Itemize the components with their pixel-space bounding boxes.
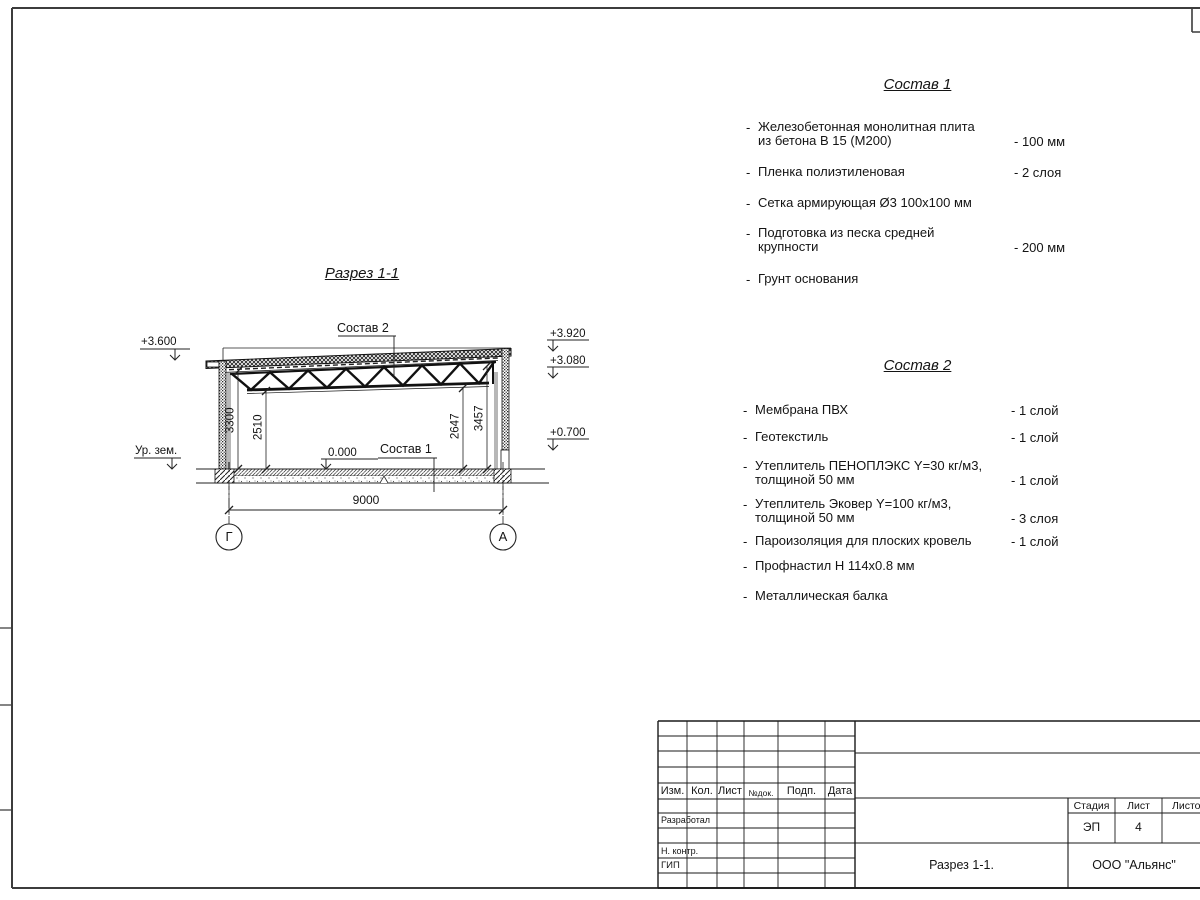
dim-2510: 2510 bbox=[253, 407, 266, 447]
list-item: - Профнастил Н 114х0.8 мм bbox=[743, 559, 915, 574]
item-value: - 100 мм bbox=[1014, 134, 1065, 149]
composition2-title: Состав 2 bbox=[845, 358, 990, 375]
elevation-3920: +3.920 bbox=[550, 328, 586, 341]
right-plinth bbox=[501, 450, 509, 469]
item-text: Пароизоляция для плоских кровель bbox=[755, 534, 972, 548]
list-item: - Геотекстиль - 1 слой bbox=[743, 430, 828, 445]
section-drawing bbox=[134, 336, 589, 550]
roof-callout-label: Состав 2 bbox=[337, 322, 389, 336]
tb-stage-label: Стадия bbox=[1068, 800, 1115, 812]
item-text: Грунт основания bbox=[758, 272, 858, 286]
bullet: - bbox=[743, 459, 747, 474]
tb-sheet-value: 4 bbox=[1115, 820, 1162, 834]
tb-stage-value: ЭП bbox=[1068, 820, 1115, 834]
list-item: - Утеплитель Эковер Y=100 кг/м3,толщиной… bbox=[743, 497, 951, 525]
bullet: - bbox=[746, 165, 750, 180]
list-item: - Грунт основания bbox=[746, 272, 858, 287]
floor-callout-label: Состав 1 bbox=[380, 443, 432, 457]
section-title: Разрез 1-1 bbox=[303, 266, 421, 283]
bullet: - bbox=[746, 272, 750, 287]
list-item: - Сетка армирующая Ø3 100х100 мм bbox=[746, 196, 972, 211]
list-item: - Железобетонная монолитная плитаиз бето… bbox=[746, 120, 975, 148]
ground-level-label: Ур. зем. bbox=[135, 445, 177, 458]
elevation-3080: +3.080 bbox=[550, 355, 586, 368]
drawing-sheet: { "misc": { "dash": "-" }, "drawing": { … bbox=[0, 0, 1200, 900]
tb-doc-title: Разрез 1-1. bbox=[855, 858, 1068, 872]
item-text: крупности bbox=[758, 239, 818, 254]
level-arrow-3600 bbox=[170, 349, 180, 360]
tb-col-podp: Подп. bbox=[778, 785, 825, 797]
floor-slab bbox=[196, 469, 549, 483]
item-value: - 1 слой bbox=[1011, 403, 1059, 418]
item-value: - 200 мм bbox=[1014, 240, 1065, 255]
right-foundation bbox=[494, 469, 511, 483]
item-text: Утеплитель Эковер Y=100 кг/м3, bbox=[755, 496, 951, 511]
tb-company: ООО "Альянс" bbox=[1068, 858, 1200, 872]
tb-col-ndok: №док. bbox=[744, 788, 778, 798]
item-text: Пленка полиэтиленовая bbox=[758, 165, 905, 179]
item-text: Железобетонная монолитная плита bbox=[758, 119, 975, 134]
sand-layer bbox=[226, 476, 495, 483]
left-foundation bbox=[215, 469, 234, 483]
item-text: Мембрана ПВХ bbox=[755, 403, 848, 417]
tb-col-kol: Кол. bbox=[687, 785, 717, 797]
zero-level-label: 0.000 bbox=[328, 447, 357, 460]
list-item: - Подготовка из песка среднейкрупности -… bbox=[746, 226, 934, 254]
axis-letter-left: Г bbox=[215, 530, 243, 544]
item-text: толщиной 50 мм bbox=[755, 510, 855, 525]
composition1-title: Состав 1 bbox=[845, 77, 990, 94]
list-item: - Металлическая балка bbox=[743, 589, 888, 604]
tb-col-data: Дата bbox=[825, 785, 855, 797]
bullet: - bbox=[743, 559, 747, 574]
concrete-slab bbox=[226, 469, 495, 476]
item-text: толщиной 50 мм bbox=[755, 472, 855, 487]
item-text: Утеплитель ПЕНОПЛЭКС Y=30 кг/м3, bbox=[755, 458, 982, 473]
bullet: - bbox=[746, 196, 750, 211]
dim-3457: 3457 bbox=[474, 398, 487, 438]
ground-level-arrow bbox=[167, 458, 177, 469]
item-text: Сетка армирующая Ø3 100х100 мм bbox=[758, 196, 972, 210]
tb-col-list: Лист bbox=[716, 785, 744, 797]
item-text: из бетона В 15 (М200) bbox=[758, 133, 892, 148]
level-arrow-0700 bbox=[548, 439, 558, 450]
list-item: - Пароизоляция для плоских кровель - 1 с… bbox=[743, 534, 972, 549]
item-value: - 1 слой bbox=[1011, 473, 1059, 488]
level-arrow-3080 bbox=[548, 367, 558, 378]
tb-sheet-label: Лист bbox=[1115, 800, 1162, 812]
list-item: - Мембрана ПВХ - 1 слой bbox=[743, 403, 848, 418]
item-value: - 2 слоя bbox=[1014, 165, 1061, 180]
dim-3300: 3300 bbox=[225, 400, 238, 440]
right-wall bbox=[502, 349, 509, 451]
tb-row-nkontr: Н. контр. bbox=[661, 846, 721, 856]
item-text: Металлическая балка bbox=[755, 589, 888, 603]
bullet: - bbox=[743, 589, 747, 604]
bullet: - bbox=[743, 430, 747, 445]
list-item: - Пленка полиэтиленовая - 2 слоя bbox=[746, 165, 905, 180]
bullet: - bbox=[743, 497, 747, 512]
zero-level-arrow bbox=[321, 459, 331, 469]
item-text: Профнастил Н 114х0.8 мм bbox=[755, 559, 915, 573]
item-value: - 1 слой bbox=[1011, 534, 1059, 549]
item-text: Геотекстиль bbox=[755, 430, 828, 444]
bullet: - bbox=[743, 403, 747, 418]
level-arrow-3920 bbox=[548, 340, 558, 351]
tb-col-izm: Изм. bbox=[658, 785, 687, 797]
bullet: - bbox=[743, 534, 747, 549]
elevation-3600: +3.600 bbox=[141, 336, 177, 349]
axis-letter-right: А bbox=[489, 530, 517, 544]
roof-end-cap bbox=[207, 362, 219, 367]
item-value: - 3 слоя bbox=[1011, 511, 1058, 526]
list-item: - Утеплитель ПЕНОПЛЭКС Y=30 кг/м3,толщин… bbox=[743, 459, 982, 487]
item-value: - 1 слой bbox=[1011, 430, 1059, 445]
tb-row-gip: ГИП bbox=[661, 860, 721, 871]
bullet: - bbox=[746, 120, 750, 135]
bullet: - bbox=[746, 226, 750, 241]
tb-row-razrabotal: Разработал bbox=[661, 815, 721, 825]
dim-2647: 2647 bbox=[450, 406, 463, 446]
elevation-0700: +0.700 bbox=[550, 427, 586, 440]
dim-9000: 9000 bbox=[336, 494, 396, 507]
item-text: Подготовка из песка средней bbox=[758, 225, 934, 240]
tb-sheets-label: Листов bbox=[1162, 800, 1200, 812]
